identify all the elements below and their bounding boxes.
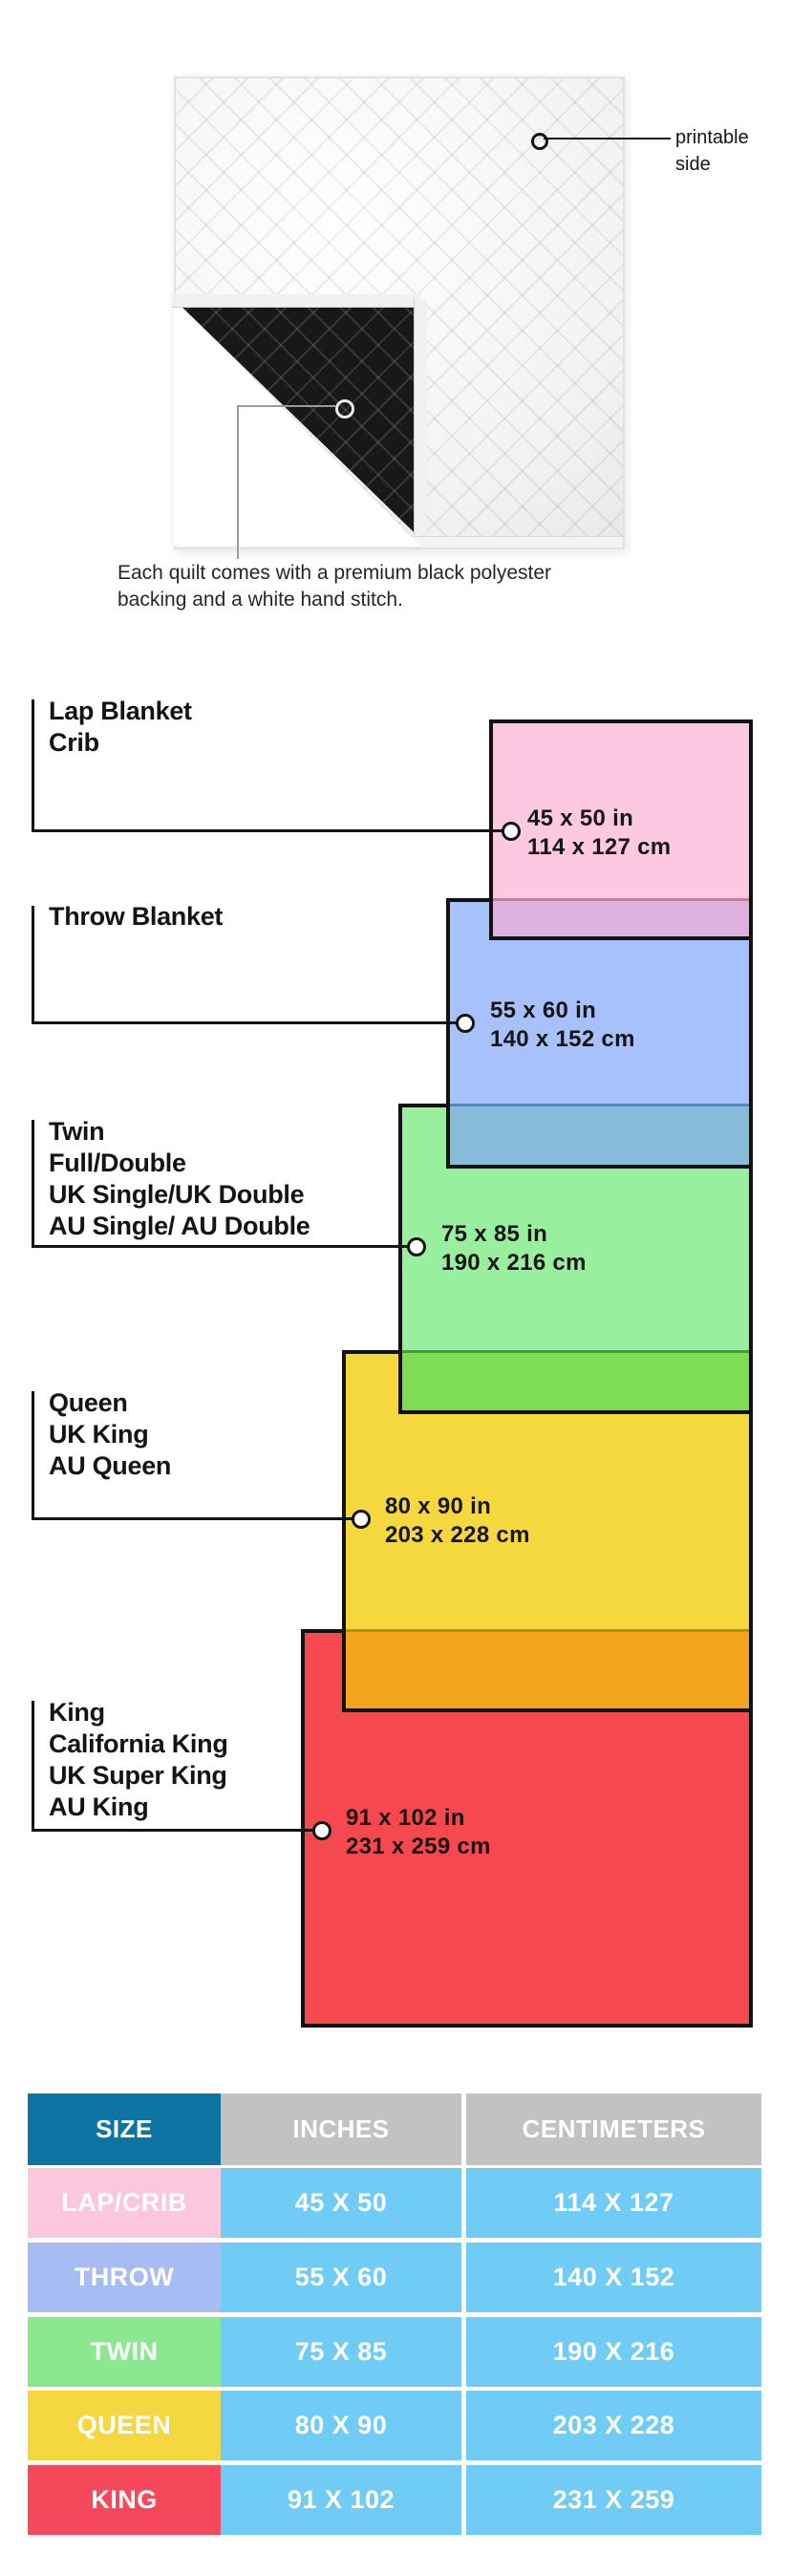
overlap-throw-over-twin	[450, 1104, 749, 1165]
label-throw: Throw Blanket	[49, 901, 223, 933]
printable-side-label-line2: side	[675, 151, 749, 178]
table-row-king-size: KING	[28, 2465, 221, 2535]
label-lap: Lap Blanket Crib	[49, 696, 192, 759]
table-row-throw-inches: 55 X 60	[221, 2243, 461, 2312]
table-row-lap-centimeters: 114 X 127	[466, 2168, 761, 2238]
table-header-size: SIZE	[28, 2093, 221, 2165]
table-row-twin-size: TWIN	[28, 2317, 221, 2387]
dim-queen-centimeters: 203 x 228 cm	[385, 1521, 530, 1550]
table-row-twin-inches: 75 X 85	[221, 2317, 461, 2387]
dim-lap-inches: 45 x 50 in	[527, 805, 671, 833]
overlap-queen-over-king	[346, 1629, 749, 1708]
leader-lap-horizontal	[32, 829, 504, 832]
leader-king-horizontal	[32, 1829, 314, 1832]
quilt-size-infographic: printable side Each quilt comes with a p…	[0, 0, 791, 2576]
quilt-fold-crease-vertical	[414, 299, 427, 535]
table-row-queen-size: QUEEN	[28, 2391, 221, 2460]
label-king-line3: UK Super King	[49, 1760, 228, 1792]
quilt-caption-line1: Each quilt comes with a premium black po…	[118, 560, 551, 587]
label-king-line2: California King	[49, 1728, 228, 1760]
table-row-lap-inches: 45 X 50	[221, 2168, 461, 2238]
label-king: King California King UK Super King AU Ki…	[49, 1697, 228, 1823]
leader-twin-vertical	[32, 1120, 34, 1247]
leader-king-vertical	[32, 1701, 34, 1831]
dim-king-centimeters: 231 x 259 cm	[346, 1833, 491, 1861]
table-row-twin-centimeters: 190 X 216	[466, 2317, 761, 2387]
leader-king-circle	[312, 1821, 331, 1840]
overlap-twin-over-queen	[402, 1350, 749, 1410]
printable-side-callout-circle	[531, 133, 548, 150]
label-king-line1: King	[49, 1697, 228, 1728]
table-header-inches: INCHES	[221, 2093, 461, 2165]
table-row-throw-size: THROW	[28, 2243, 221, 2312]
leader-twin-circle	[407, 1237, 426, 1256]
dim-twin: 75 x 85 in 190 x 216 cm	[441, 1220, 587, 1277]
backing-callout-line-vertical	[237, 405, 239, 559]
dim-throw-inches: 55 x 60 in	[490, 997, 635, 1025]
dim-king-inches: 91 x 102 in	[346, 1804, 491, 1833]
label-lap-line2: Crib	[49, 727, 192, 759]
table-row-lap-size: LAP/CRIB	[28, 2168, 221, 2238]
table-row-king-centimeters: 231 X 259	[466, 2465, 761, 2535]
table-header-centimeters: CENTIMETERS	[466, 2093, 761, 2165]
label-queen-line1: Queen	[49, 1387, 171, 1419]
backing-callout-circle	[335, 399, 354, 419]
printable-side-label-line1: printable	[675, 124, 749, 151]
label-twin-line2: Full/Double	[49, 1148, 310, 1179]
leader-twin-horizontal	[32, 1245, 410, 1248]
dim-twin-inches: 75 x 85 in	[441, 1220, 587, 1249]
label-twin-line4: AU Single/ AU Double	[49, 1211, 310, 1242]
leader-queen-vertical	[32, 1391, 34, 1519]
overlap-lap-over-throw	[493, 898, 749, 936]
leader-throw-vertical	[32, 906, 34, 1024]
label-lap-line1: Lap Blanket	[49, 696, 192, 727]
dim-throw: 55 x 60 in 140 x 152 cm	[490, 997, 635, 1054]
label-queen-line3: AU Queen	[49, 1450, 171, 1482]
printable-side-label: printable side	[675, 124, 749, 178]
label-queen-line2: UK King	[49, 1419, 171, 1450]
dim-king: 91 x 102 in 231 x 259 cm	[346, 1804, 491, 1861]
label-twin: Twin Full/Double UK Single/UK Double AU …	[49, 1116, 310, 1242]
label-king-line4: AU King	[49, 1792, 228, 1823]
table-row-throw-centimeters: 140 X 152	[466, 2243, 761, 2312]
backing-callout-line-horizontal	[237, 405, 335, 407]
leader-lap-vertical	[32, 699, 34, 831]
leader-throw-horizontal	[32, 1021, 459, 1024]
label-twin-line1: Twin	[49, 1116, 310, 1148]
table-row-queen-inches: 80 X 90	[221, 2391, 461, 2460]
quilt-caption-line2: backing and a white hand stitch.	[118, 587, 551, 613]
dim-queen-inches: 80 x 90 in	[385, 1492, 530, 1521]
printable-side-callout-line	[544, 138, 671, 140]
leader-lap-circle	[502, 822, 521, 841]
quilt-fold-crease-horizontal	[172, 294, 422, 308]
quilt-caption: Each quilt comes with a premium black po…	[118, 560, 551, 613]
dim-twin-centimeters: 190 x 216 cm	[441, 1249, 587, 1277]
dim-throw-centimeters: 140 x 152 cm	[490, 1025, 635, 1054]
table-row-king-inches: 91 X 102	[221, 2465, 461, 2535]
label-twin-line3: UK Single/UK Double	[49, 1179, 310, 1211]
leader-queen-circle	[352, 1510, 371, 1529]
table-row-queen-centimeters: 203 X 228	[466, 2391, 761, 2460]
label-queen: Queen UK King AU Queen	[49, 1387, 171, 1482]
dim-lap-centimeters: 114 x 127 cm	[527, 833, 671, 862]
leader-queen-horizontal	[32, 1517, 354, 1520]
dim-queen: 80 x 90 in 203 x 228 cm	[385, 1492, 530, 1550]
dim-lap: 45 x 50 in 114 x 127 cm	[527, 805, 671, 862]
leader-throw-circle	[456, 1014, 475, 1033]
label-throw-line1: Throw Blanket	[49, 901, 223, 933]
